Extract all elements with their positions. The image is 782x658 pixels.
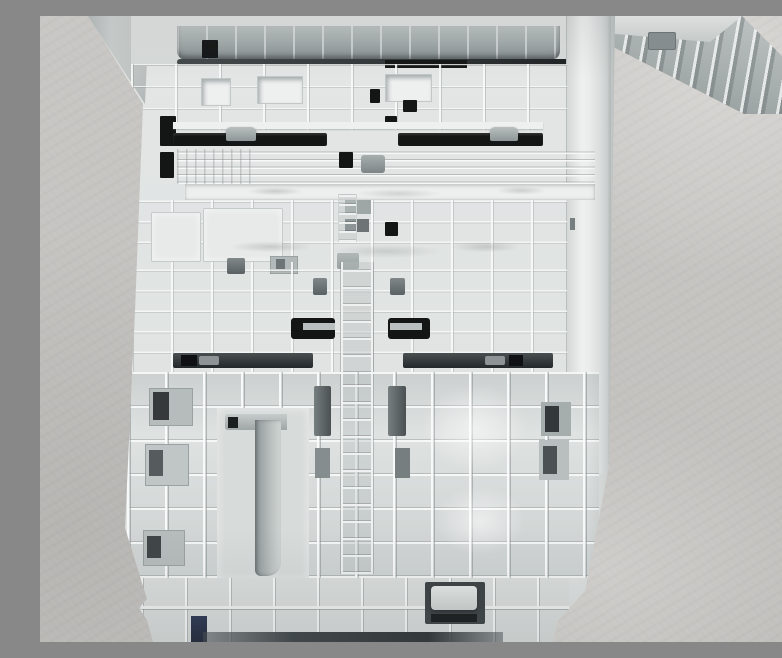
- black-cutout-1: [403, 100, 417, 112]
- gray-clip-4: [390, 278, 405, 295]
- dark-track-slot-right: [403, 353, 553, 368]
- hook-channel-bar: [255, 420, 281, 576]
- track-slot-left-slider: [199, 356, 219, 365]
- ladder-black-cutout: [339, 152, 353, 168]
- upper-recess-window-3: [385, 74, 432, 102]
- bracket-notch: [648, 32, 676, 50]
- track-slot-left-nub: [181, 355, 197, 366]
- gray-clip-3: [313, 278, 327, 295]
- left-latch-2: [149, 450, 163, 476]
- flat-panel-left-small: [151, 212, 201, 262]
- slider-tab-right: [490, 127, 518, 141]
- left-latch-3: [147, 536, 161, 558]
- plastic-sheen-2: [435, 486, 525, 556]
- left-rail-latch-slot-lower: [160, 152, 174, 178]
- mini-rib-ladder: [338, 194, 357, 242]
- center-rib-ladder-upper: [341, 262, 373, 374]
- smudged-white-crossbar: [185, 184, 595, 200]
- gray-clip-1: [227, 258, 245, 274]
- photo-scene: Top-down photograph of a light gray mold…: [40, 16, 782, 642]
- dirt-smudge-streak: [205, 238, 535, 260]
- mounting-bracket: [592, 16, 782, 114]
- lock-slot-right-tongue: [390, 323, 422, 330]
- black-cutout-3: [370, 89, 380, 103]
- right-latch-2: [543, 446, 557, 474]
- lock-slot-left-tongue: [303, 323, 335, 330]
- center-rib-ladder-lower: [341, 374, 373, 574]
- track-slot-right-nub: [509, 355, 523, 366]
- upper-recess-window-2: [257, 76, 303, 104]
- rib-ladder-ticks: [177, 149, 257, 184]
- upper-recess-window-1: [201, 78, 231, 106]
- roller-notch: [202, 40, 218, 58]
- dark-vertical-slot-right-lower: [395, 448, 410, 478]
- bottom-shadow-band: [203, 632, 503, 642]
- dark-vertical-slot-right: [388, 386, 406, 436]
- hook-channel-accent: [228, 417, 238, 428]
- slider-tab-left: [226, 127, 256, 141]
- track-slot-right-slider: [485, 356, 505, 365]
- handle-recess-box: [431, 586, 477, 610]
- plastic-sheen-1: [423, 384, 527, 472]
- black-cutout-4: [385, 222, 398, 236]
- right-latch-1: [545, 406, 559, 432]
- left-latch-1: [153, 392, 169, 420]
- handle-recess-slot: [431, 614, 477, 622]
- right-edge-shade: [607, 16, 611, 464]
- right-rail-notch: [570, 218, 575, 230]
- front-ribbed-roller-edge: [177, 26, 560, 60]
- guide-slot-right: [398, 133, 543, 146]
- ladder-gray-clip: [361, 155, 385, 173]
- dark-vertical-slot-left-lower: [315, 448, 330, 478]
- bottom-cross-rib: [141, 606, 569, 609]
- upper-rib-zone: [131, 64, 567, 130]
- dark-vertical-slot-left: [314, 386, 331, 436]
- paper-tray-cassette: [85, 16, 615, 642]
